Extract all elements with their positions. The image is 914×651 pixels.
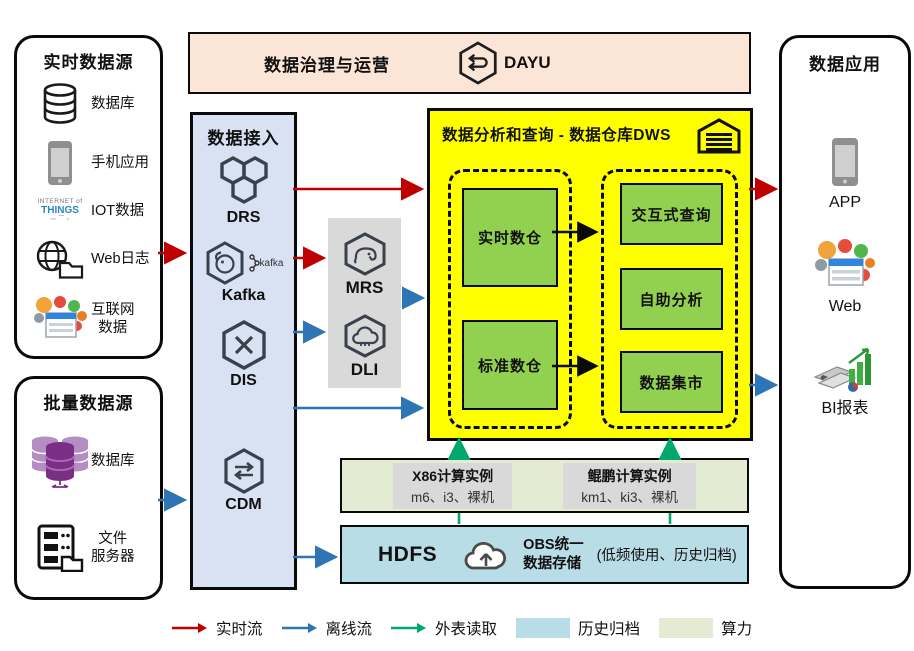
obs-label: OBS统一数据存储 (523, 536, 583, 572)
legend-compute: 算力 (659, 617, 752, 639)
legend-offline-arrow-icon (282, 622, 318, 634)
kafka-icon (204, 241, 246, 285)
archive-swatch (516, 618, 570, 638)
drs-icon (216, 155, 272, 207)
module-interactive-query: 交互式查询 (620, 183, 723, 245)
module-data-mart: 数据集市 (620, 351, 723, 413)
bi-report-icon (813, 345, 877, 393)
realtime-sources-panel: 实时数据源 数据库 手机应用 INTERNET ofTHINGS▫▫ ⁀ ▫ I… (14, 35, 163, 359)
source-row-internet: 互联网数据 (17, 295, 160, 343)
kafka-label: Kafka (222, 287, 266, 305)
kunpeng-detail: km1、ki3、裸机 (581, 486, 678, 506)
cloud-upload-icon (462, 537, 510, 573)
apps-title: 数据应用 (809, 50, 881, 75)
module-self-analysis: 自助分析 (620, 268, 723, 330)
x86-detail: m6、i3、裸机 (411, 486, 494, 506)
apps-panel: 数据应用 APP Web BI报表 (779, 35, 911, 589)
batch-sources-panel: 批量数据源 数据库 文件服务器 (14, 376, 163, 600)
drs-label: DRS (227, 209, 261, 227)
source-label: Web日志 (91, 251, 150, 267)
module-standard-warehouse: 标准数仓 (462, 320, 558, 410)
storage-note: (低频使用、历史归档) (597, 544, 737, 565)
dli-label: DLI (351, 360, 378, 380)
database-purple-icon (29, 433, 91, 489)
governance-title: 数据治理与运营 (264, 51, 390, 76)
kafka-logo: kafka (248, 254, 284, 272)
x86-title: X86计算实例 (411, 466, 494, 486)
source-row-mobile: 手机应用 (17, 140, 160, 186)
source-label: 数据库 (91, 453, 135, 469)
globe-folder-icon (29, 237, 91, 281)
internet-collage-icon (29, 295, 91, 343)
dis-icon (220, 320, 268, 370)
kafka-word: kafka (260, 258, 284, 269)
source-label: IOT数据 (91, 203, 144, 219)
dayu-label: DAYU (504, 53, 551, 73)
source-label-2: 数据 (98, 320, 127, 336)
architecture-diagram: 实时数据源 数据库 手机应用 INTERNET ofTHINGS▫▫ ⁀ ▫ I… (0, 0, 914, 651)
legend-realtime: 实时流 (172, 617, 263, 639)
warehouse-group: 实时数仓 标准数仓 (448, 169, 572, 429)
web-collage-icon (814, 239, 876, 291)
source-row-weblog: Web日志 (17, 237, 160, 281)
dayu-icon (458, 41, 498, 85)
web-label: Web (829, 297, 862, 317)
source-row-file-server: 文件服务器 (17, 524, 160, 572)
processing-panel: MRS DLI (328, 218, 401, 388)
mobile-icon (29, 140, 91, 186)
module-realtime-warehouse: 实时数仓 (462, 188, 558, 287)
dis-label: DIS (230, 372, 257, 390)
legend-external: 外表读取 (391, 617, 497, 639)
source-row-batch-database: 数据库 (17, 433, 160, 489)
mrs-label: MRS (346, 278, 384, 298)
dws-panel: 数据分析和查询 - 数据仓库DWS 实时数仓 标准数仓 交互式查询 自助分析 数… (427, 108, 753, 441)
dli-icon (342, 314, 388, 358)
source-label: 数据库 (91, 96, 135, 112)
iot-wordcloud-icon: INTERNET ofTHINGS▫▫ ⁀ ▫ (29, 199, 91, 223)
data-access-panel: 数据接入 DRS kafka Kafka DIS CDM (190, 112, 297, 590)
governance-banner: 数据治理与运营 DAYU (188, 32, 751, 94)
source-label: 文件 (98, 531, 127, 547)
kunpeng-instance-chip: 鲲鹏计算实例 km1、ki3、裸机 (563, 463, 696, 509)
services-group: 交互式查询 自助分析 数据集市 (601, 169, 738, 429)
source-label: 互联网 (91, 302, 135, 318)
source-label-2: 服务器 (91, 549, 135, 565)
app-phone-icon (828, 137, 862, 187)
file-server-icon (29, 524, 91, 572)
legend-archive: 历史归档 (516, 617, 640, 639)
app-label: APP (829, 193, 861, 213)
legend-external-arrow-icon (391, 622, 427, 634)
realtime-sources-title: 实时数据源 (44, 48, 134, 73)
source-row-database: 数据库 (17, 82, 160, 126)
hdfs-label: HDFS (378, 543, 437, 567)
kunpeng-title: 鲲鹏计算实例 (581, 466, 678, 486)
legend: 实时流 离线流 外表读取 历史归档 算力 (172, 617, 752, 639)
compute-swatch (659, 618, 713, 638)
batch-sources-title: 批量数据源 (44, 389, 134, 414)
warehouse-icon (696, 117, 742, 155)
legend-offline: 离线流 (282, 617, 373, 639)
mrs-icon (342, 232, 388, 276)
x86-instance-chip: X86计算实例 m6、i3、裸机 (393, 463, 512, 509)
source-label: 手机应用 (91, 155, 149, 171)
cdm-icon (222, 448, 266, 494)
data-access-title: 数据接入 (208, 124, 280, 149)
compute-bar: X86计算实例 m6、i3、裸机 鲲鹏计算实例 km1、ki3、裸机 (340, 458, 749, 513)
bi-label: BI报表 (821, 399, 868, 419)
dws-title: 数据分析和查询 - 数据仓库DWS (442, 123, 712, 145)
database-icon (29, 82, 91, 126)
legend-realtime-arrow-icon (172, 622, 208, 634)
cdm-label: CDM (225, 496, 261, 514)
storage-bar: HDFS OBS统一数据存储 (低频使用、历史归档) (340, 525, 749, 584)
source-row-iot: INTERNET ofTHINGS▫▫ ⁀ ▫ IOT数据 (17, 199, 160, 223)
